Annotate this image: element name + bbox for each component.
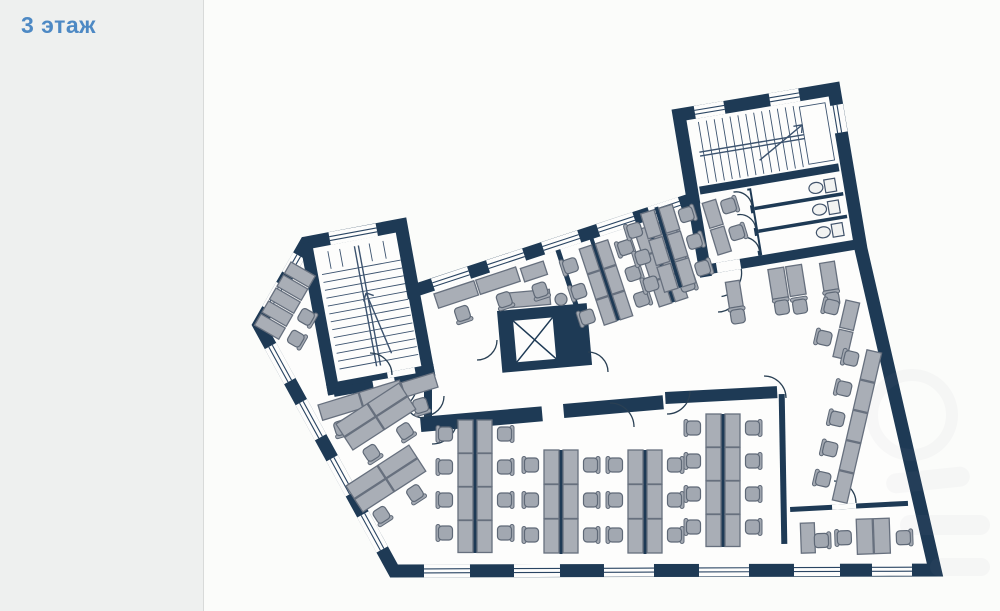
desk [647,485,662,519]
chair [746,420,763,437]
desk [706,448,721,481]
chair [436,492,453,509]
desk [800,523,815,553]
chair [814,532,831,550]
window [699,563,749,576]
chair [684,486,701,503]
chair [436,459,453,476]
chair [498,492,515,509]
desk [544,519,559,553]
chair [584,457,601,474]
desk [628,450,643,484]
chair [684,519,701,536]
chair [606,527,623,544]
desk [563,450,578,484]
desk [725,448,740,481]
chair [584,527,601,544]
desk [725,515,740,547]
desk [706,515,721,547]
desk [563,485,578,519]
chair [522,457,539,474]
desk [477,420,492,453]
desk-column-2 [522,450,600,554]
desk [725,481,740,514]
desk [647,450,662,484]
floor-plan-svg [0,0,1000,611]
desk [725,414,740,447]
desk [477,454,492,487]
chair [668,457,685,474]
desk-column-3 [606,450,684,554]
chair [835,529,852,547]
desk [628,519,643,553]
chair [498,525,515,542]
chair [498,426,515,443]
chair [746,519,763,536]
chair [746,486,763,503]
desk [544,485,559,519]
chair [522,527,539,544]
desk [458,454,473,487]
chair [584,492,601,509]
desk [477,521,492,553]
desk [563,519,578,553]
chair [668,492,685,509]
chair [436,525,453,542]
desk [706,481,721,514]
chair [684,453,701,470]
desk [706,414,721,447]
window [872,563,912,576]
screenshot-stage: 3 этаж [0,0,1000,611]
desk [856,519,873,555]
chair [606,492,623,509]
desk [477,487,492,520]
desk [873,518,890,554]
desk [458,420,473,453]
chair [684,420,701,437]
chair [522,492,539,509]
window [424,564,470,577]
desk [458,487,473,520]
chair [606,457,623,474]
desk [628,485,643,519]
chair [498,459,515,476]
window [794,563,840,576]
desk [647,519,662,553]
desk [458,521,473,553]
chair [746,453,763,470]
window [604,564,654,577]
window [514,564,560,577]
chair [668,527,685,544]
desk [544,450,559,484]
chair [436,426,453,443]
